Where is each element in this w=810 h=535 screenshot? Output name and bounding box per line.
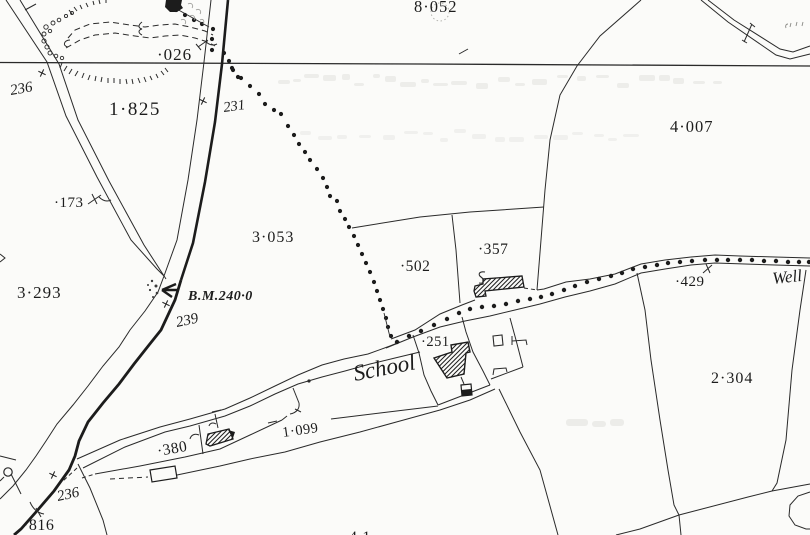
svg-text:·251: ·251 [421, 334, 450, 350]
svg-text:231: 231 [222, 97, 246, 116]
svg-text:·173: ·173 [54, 195, 84, 211]
svg-text:·429: ·429 [675, 274, 705, 290]
svg-text:·357: ·357 [478, 241, 508, 258]
svg-text:2·304: 2·304 [711, 370, 753, 387]
svg-text:4·007: 4·007 [670, 117, 714, 136]
svg-text:3·053: 3·053 [252, 229, 294, 246]
svg-text:3·293: 3·293 [17, 283, 62, 302]
svg-text:·502: ·502 [400, 258, 430, 275]
svg-text:8·052: 8·052 [414, 0, 458, 16]
svg-text:Well: Well [771, 266, 803, 288]
svg-text:4·1: 4·1 [349, 529, 370, 535]
svg-text:·816: ·816 [23, 517, 54, 534]
svg-text:·026: ·026 [157, 45, 192, 64]
svg-text:1·825: 1·825 [109, 99, 161, 120]
svg-text:B.M.240·0: B.M.240·0 [187, 289, 253, 304]
